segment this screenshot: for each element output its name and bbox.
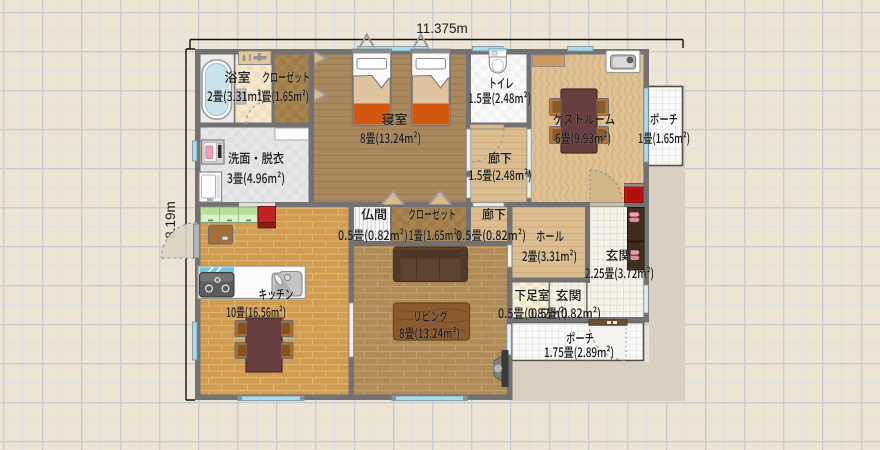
svg-text:11.375m: 11.375m: [416, 21, 468, 36]
